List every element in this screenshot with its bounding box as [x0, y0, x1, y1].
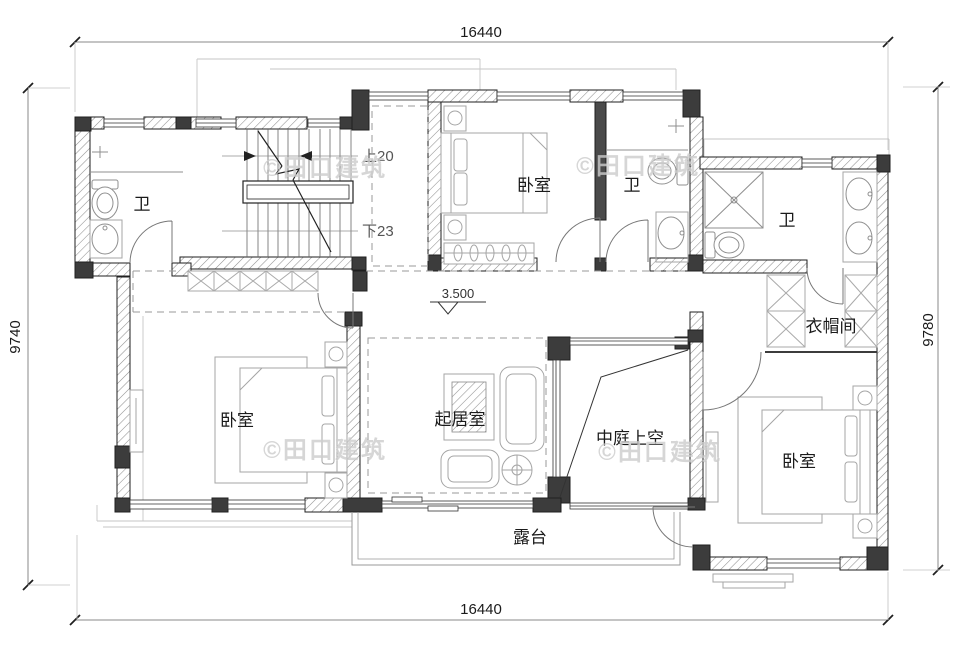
- faucet-icon: [92, 146, 108, 158]
- atrium-rail-bottom: [570, 503, 688, 509]
- stair-arrowhead-left: [244, 151, 256, 161]
- nightstand: [444, 215, 466, 240]
- door-bedroom-top: [556, 218, 600, 262]
- floor-plan-sheet: 上20 下23 3.500: [0, 0, 960, 660]
- nightstand: [853, 386, 877, 410]
- nightstand: [853, 514, 877, 538]
- watermark-text: ©田口建筑: [598, 438, 722, 466]
- living-atrium-glass: [553, 360, 560, 477]
- door-bath-middle: [606, 220, 648, 262]
- understair-cabinets: [188, 271, 318, 291]
- door-cloakroom: [703, 352, 761, 410]
- atrium-void-diagonal: [560, 350, 688, 497]
- entry-step: [723, 582, 785, 588]
- room-label-bath-right: 卫: [779, 211, 796, 230]
- sink-icon: [92, 224, 118, 254]
- nightstand: [444, 106, 466, 131]
- watermark-text: ©田口建筑: [263, 436, 387, 464]
- staircase: 上20 下23: [222, 129, 394, 257]
- stair-down-label: 下23: [362, 223, 394, 240]
- room-label-living-room: 起居室: [435, 410, 486, 429]
- room-labels: 卫 卧室 卫 卫 衣帽间 卧室 起居室 中庭上空 卧室 露台: [134, 176, 857, 547]
- room-label-bedroom-right: 卧室: [782, 452, 816, 471]
- cloakroom-wardrobes: [767, 275, 877, 347]
- pillow: [454, 173, 467, 205]
- level-value: 3.500: [442, 286, 475, 301]
- toilet-icon: [92, 187, 118, 219]
- watermark-text: ©田口建筑: [263, 154, 387, 182]
- room-label-bath-left: 卫: [134, 195, 151, 214]
- watermark-text: ©田口建筑: [576, 152, 700, 180]
- dimension-bottom: 16440: [70, 535, 893, 625]
- living-terrace-slider: [382, 497, 533, 511]
- nightstand: [325, 342, 347, 367]
- pillow: [322, 376, 334, 416]
- dimension-right-value: 9780: [920, 313, 937, 346]
- room-label-terrace: 露台: [513, 528, 547, 547]
- stair-rail: [243, 181, 353, 203]
- room-label-bedroom-left: 卧室: [220, 411, 254, 430]
- dimension-top-value: 16440: [460, 24, 502, 41]
- dimension-top: 16440: [70, 24, 893, 150]
- dimension-right: 9780: [903, 82, 950, 575]
- nightstand: [325, 473, 347, 498]
- room-label-bedroom-top: 卧室: [517, 176, 551, 195]
- entry-step: [713, 574, 793, 582]
- room-label-cloakroom: 衣帽间: [806, 317, 857, 336]
- dimension-left-value: 9740: [7, 320, 24, 353]
- door-bath-left: [130, 221, 172, 263]
- faucet-icon: [668, 119, 684, 133]
- dimension-bottom-value: 16440: [460, 601, 502, 618]
- atrium-rail-top: [570, 338, 688, 345]
- door-bath-right: [807, 268, 843, 304]
- stair-void-dashed: [372, 106, 428, 266]
- pillow: [454, 139, 467, 171]
- dimension-left: 9740: [7, 83, 70, 590]
- level-triangle-icon: [438, 302, 458, 314]
- pillow: [845, 462, 857, 502]
- level-marker: 3.500: [430, 286, 486, 314]
- pillow: [845, 416, 857, 456]
- floor-plan-drawing: 上20 下23 3.500: [0, 0, 960, 660]
